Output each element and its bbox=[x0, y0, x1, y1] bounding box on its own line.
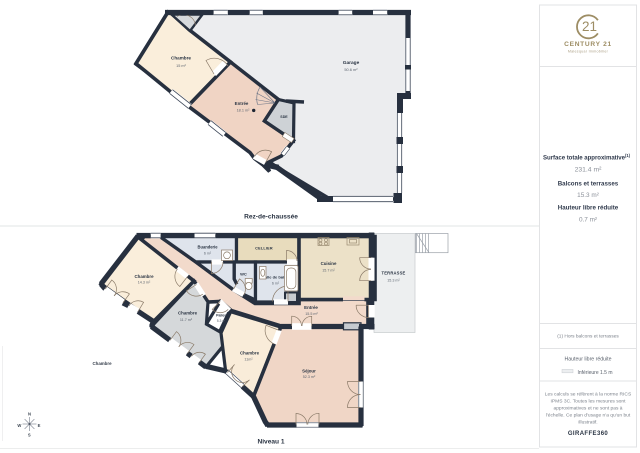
svg-text:52.3 m²: 52.3 m² bbox=[303, 375, 316, 379]
svg-text:SDE: SDE bbox=[280, 115, 288, 119]
svg-text:l'échelle. Ce plan d'usage n'a: l'échelle. Ce plan d'usage n'a qu'un but bbox=[546, 413, 631, 419]
svg-text:Chambre: Chambre bbox=[171, 56, 191, 61]
svg-text:Buanderie: Buanderie bbox=[197, 245, 218, 250]
svg-text:Chambre: Chambre bbox=[92, 361, 112, 366]
svg-text:CENTURY 21: CENTURY 21 bbox=[564, 41, 612, 48]
svg-text:15.3 m²: 15.3 m² bbox=[577, 192, 599, 199]
svg-text:Palier: Palier bbox=[216, 314, 226, 318]
svg-text:Rez-de-chaussée: Rez-de-chaussée bbox=[244, 214, 298, 221]
svg-text:WC: WC bbox=[240, 272, 247, 277]
svg-text:231.4 m²: 231.4 m² bbox=[575, 167, 603, 174]
svg-text:0.7 m²: 0.7 m² bbox=[579, 217, 597, 224]
svg-text:Hauteur libre réduite: Hauteur libre réduite bbox=[558, 205, 619, 212]
svg-text:Chambre: Chambre bbox=[178, 311, 198, 316]
svg-text:11.7 m²: 11.7 m² bbox=[180, 318, 193, 322]
svg-text:(1) Hors balcons et terrasses: (1) Hors balcons et terrasses bbox=[557, 334, 619, 340]
svg-text:approximatives et ne sont pas: approximatives et ne sont pas à bbox=[553, 406, 622, 412]
svg-text:CELLIER: CELLIER bbox=[255, 247, 273, 251]
svg-text:14.3 m²: 14.3 m² bbox=[138, 281, 151, 285]
svg-text:15 m²: 15 m² bbox=[176, 64, 186, 68]
svg-text:Inférieure 1.5 m: Inférieure 1.5 m bbox=[578, 370, 613, 376]
svg-text:11m²: 11m² bbox=[244, 358, 253, 362]
svg-text:Niveau 1: Niveau 1 bbox=[257, 439, 284, 446]
svg-text:S: S bbox=[28, 433, 31, 438]
svg-text:illustratif.: illustratif. bbox=[578, 420, 597, 426]
svg-text:15.5 m²: 15.5 m² bbox=[305, 312, 318, 316]
svg-text:Malesquar Immobilier: Malesquar Immobilier bbox=[568, 50, 609, 54]
svg-text:IPMS 3C. Toutes les mesures so: IPMS 3C. Toutes les mesures sont bbox=[551, 399, 627, 405]
svg-text:Entrée: Entrée bbox=[235, 101, 249, 106]
svg-text:21: 21 bbox=[582, 19, 597, 34]
svg-text:15.7 m²: 15.7 m² bbox=[322, 268, 335, 272]
svg-text:Les calculs se réfèrent à la n: Les calculs se réfèrent à la norme RICS bbox=[545, 392, 632, 398]
svg-text:E: E bbox=[38, 423, 41, 428]
svg-text:TERRASSE: TERRASSE bbox=[382, 271, 406, 276]
svg-text:GIRAFFE360: GIRAFFE360 bbox=[568, 431, 609, 437]
svg-text:N: N bbox=[28, 412, 31, 417]
svg-text:Hauteur libre réduite: Hauteur libre réduite bbox=[564, 357, 611, 363]
svg-text:Chambre: Chambre bbox=[134, 274, 154, 279]
svg-text:Cuisine: Cuisine bbox=[321, 261, 337, 266]
svg-text:Balcons et terrasses: Balcons et terrasses bbox=[558, 181, 619, 188]
svg-text:50.6 m²: 50.6 m² bbox=[344, 67, 358, 72]
svg-text:Surface totale approximative(1: Surface totale approximative(1) bbox=[543, 153, 631, 161]
svg-text:Garage: Garage bbox=[343, 60, 360, 66]
svg-text:Séjour: Séjour bbox=[302, 369, 316, 374]
svg-text:18.1 m²: 18.1 m² bbox=[237, 109, 251, 113]
svg-text:15.3 m²: 15.3 m² bbox=[387, 279, 400, 283]
svg-text:6 m²: 6 m² bbox=[272, 282, 280, 286]
svg-text:Entrée: Entrée bbox=[304, 305, 318, 310]
svg-text:W: W bbox=[17, 423, 21, 428]
svg-text:6 m²: 6 m² bbox=[204, 252, 212, 256]
svg-text:Chambre: Chambre bbox=[240, 351, 260, 356]
